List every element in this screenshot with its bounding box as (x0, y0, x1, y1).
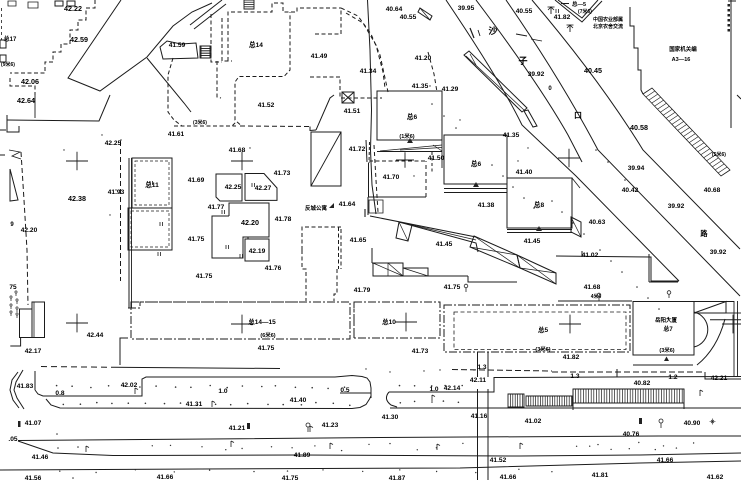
svg-text:41.45: 41.45 (524, 238, 541, 245)
svg-text:41.38: 41.38 (478, 202, 495, 209)
svg-text:42.64: 42.64 (17, 96, 35, 105)
svg-text:41.77: 41.77 (208, 204, 225, 211)
svg-text:路: 路 (700, 229, 708, 238)
svg-text:41.64: 41.64 (339, 201, 356, 208)
svg-text:1.2: 1.2 (668, 374, 677, 381)
svg-text:(7米6): (7米6) (578, 8, 592, 15)
svg-text:(6米6): (6米6) (260, 331, 275, 339)
svg-text:41.78: 41.78 (275, 216, 292, 223)
svg-text:41.29: 41.29 (442, 86, 459, 93)
svg-text:41.40: 41.40 (290, 397, 307, 404)
svg-text:42.22: 42.22 (64, 4, 82, 13)
svg-text:口: 口 (574, 111, 582, 120)
svg-text:40.76: 40.76 (623, 431, 640, 438)
svg-text:41.83: 41.83 (17, 383, 34, 390)
svg-text:国家机关编: 国家机关编 (669, 45, 697, 53)
svg-text:41.51: 41.51 (344, 108, 361, 115)
svg-text:41.46: 41.46 (32, 454, 49, 461)
svg-text:42.38: 42.38 (68, 194, 86, 203)
svg-text:A3—16: A3—16 (672, 57, 691, 63)
svg-text:(1米6): (1米6) (399, 132, 414, 140)
svg-text:40.64: 40.64 (386, 6, 403, 13)
svg-text:39.92: 39.92 (528, 71, 545, 78)
svg-text:1.0: 1.0 (429, 386, 438, 393)
svg-text:40.45: 40.45 (584, 66, 602, 75)
svg-text:(9米6): (9米6) (1, 61, 15, 68)
svg-text:42.14: 42.14 (444, 385, 461, 392)
svg-text:41.75: 41.75 (444, 284, 461, 291)
svg-text:40.42: 40.42 (622, 187, 639, 194)
svg-text:40.55: 40.55 (400, 14, 417, 21)
svg-text:41.56: 41.56 (25, 475, 42, 480)
svg-text:总6: 总6 (407, 112, 418, 121)
svg-text:41.82: 41.82 (554, 14, 571, 21)
svg-text:总14: 总14 (249, 40, 263, 49)
svg-text:(3米6): (3米6) (193, 119, 207, 126)
svg-text:41.16: 41.16 (471, 413, 488, 420)
svg-text:41.21: 41.21 (229, 425, 246, 432)
svg-text:40.82: 40.82 (634, 380, 651, 387)
svg-text:0.8: 0.8 (55, 390, 64, 397)
svg-text:41.75: 41.75 (196, 273, 213, 280)
svg-text:反城公寓: 反城公寓 (305, 204, 328, 212)
svg-text:42.02: 42.02 (121, 382, 138, 389)
svg-text:42.17: 42.17 (25, 348, 42, 355)
svg-text:总6: 总6 (471, 159, 482, 168)
svg-text:中国农业部属: 中国农业部属 (593, 16, 623, 23)
svg-text:41.49: 41.49 (311, 53, 328, 60)
svg-text:40.58: 40.58 (630, 123, 648, 132)
svg-text:41.68: 41.68 (229, 147, 246, 154)
svg-text:41.31: 41.31 (186, 401, 203, 408)
svg-text:41.40: 41.40 (516, 169, 533, 176)
svg-text:41.45: 41.45 (436, 241, 453, 248)
svg-text:41.35: 41.35 (503, 132, 520, 139)
svg-text:总8: 总8 (534, 200, 545, 209)
svg-text:41.75: 41.75 (282, 475, 299, 480)
svg-text:42.25: 42.25 (225, 184, 242, 191)
svg-text:41.87: 41.87 (389, 475, 406, 480)
svg-text:沙: 沙 (488, 26, 497, 36)
svg-text:41.68: 41.68 (584, 284, 601, 291)
svg-text:41.66: 41.66 (657, 457, 674, 464)
svg-text:41.62: 41.62 (707, 474, 724, 480)
svg-text:42.21: 42.21 (711, 375, 728, 382)
svg-text:42.20: 42.20 (21, 227, 38, 234)
svg-text:41.89: 41.89 (294, 452, 311, 459)
svg-text:41.66: 41.66 (500, 474, 517, 480)
svg-text:北京农舍交流: 北京农舍交流 (593, 23, 623, 30)
svg-text:(3米6): (3米6) (535, 345, 550, 353)
svg-text:41.81: 41.81 (592, 472, 609, 479)
svg-text:41.79: 41.79 (354, 287, 371, 294)
svg-text:41.75: 41.75 (258, 345, 275, 352)
svg-text:.05: .05 (8, 436, 17, 443)
svg-text:子: 子 (518, 56, 527, 66)
svg-text:42.25: 42.25 (105, 140, 122, 147)
svg-text:41.73: 41.73 (274, 170, 291, 177)
svg-text:39.92: 39.92 (668, 203, 685, 210)
svg-text:41.52: 41.52 (490, 457, 507, 464)
svg-text:41.73: 41.73 (412, 348, 429, 355)
svg-text:41.69: 41.69 (188, 177, 205, 184)
svg-text:1.3: 1.3 (570, 373, 579, 380)
svg-text:0.5: 0.5 (340, 387, 349, 394)
svg-text:41.61: 41.61 (168, 131, 185, 138)
svg-text:41.70: 41.70 (383, 174, 400, 181)
svg-text:(3米6): (3米6) (659, 346, 674, 354)
svg-text:41.93: 41.93 (108, 189, 125, 196)
svg-text:39.94: 39.94 (628, 165, 645, 172)
svg-text:41.23: 41.23 (322, 422, 339, 429)
svg-text:41.30: 41.30 (382, 414, 399, 421)
svg-text:41.20: 41.20 (415, 55, 432, 62)
svg-text:41.75: 41.75 (188, 236, 205, 243)
svg-text:总17: 总17 (4, 35, 17, 43)
svg-text:42.06: 42.06 (21, 77, 39, 86)
svg-text:41.72: 41.72 (349, 146, 366, 153)
svg-text:总—5: 总—5 (572, 0, 586, 8)
svg-text:39.92: 39.92 (710, 249, 727, 256)
svg-text:总10: 总10 (382, 317, 396, 326)
svg-text:41.34: 41.34 (360, 68, 377, 75)
svg-text:42.59: 42.59 (70, 35, 88, 44)
svg-text:41.02: 41.02 (582, 252, 599, 259)
svg-text:41.52: 41.52 (258, 102, 275, 109)
svg-text:(5米6): (5米6) (712, 151, 726, 158)
svg-text:40.90: 40.90 (684, 420, 701, 427)
svg-text:42.11: 42.11 (470, 377, 486, 384)
svg-text:41.07: 41.07 (25, 420, 42, 427)
svg-text:41.76: 41.76 (265, 265, 282, 272)
svg-text:总5: 总5 (538, 325, 549, 334)
svg-text:1.0: 1.0 (218, 388, 227, 395)
svg-text:41.65: 41.65 (350, 237, 367, 244)
svg-text:42.44: 42.44 (87, 332, 104, 339)
svg-text:40.63: 40.63 (589, 219, 606, 226)
svg-text:岳阳大厦: 岳阳大厦 (655, 316, 678, 324)
svg-text:41.50: 41.50 (428, 155, 445, 162)
svg-text:总7: 总7 (663, 325, 673, 333)
svg-text:40.68: 40.68 (704, 187, 721, 194)
svg-text:总14—15: 总14—15 (248, 317, 276, 326)
svg-text:40.55: 40.55 (516, 8, 533, 15)
svg-text:42.19: 42.19 (249, 248, 266, 255)
svg-text:41.82: 41.82 (563, 354, 580, 361)
svg-text:42.27: 42.27 (255, 185, 272, 192)
svg-text:41.66: 41.66 (157, 474, 174, 480)
svg-text:1.3: 1.3 (477, 364, 486, 371)
svg-text:39.95: 39.95 (458, 5, 475, 12)
svg-text:41.02: 41.02 (525, 418, 542, 425)
svg-text:42.20: 42.20 (241, 218, 259, 227)
svg-text:75: 75 (9, 284, 17, 291)
svg-text:41.35: 41.35 (412, 83, 429, 90)
svg-text:41.59: 41.59 (169, 42, 186, 49)
